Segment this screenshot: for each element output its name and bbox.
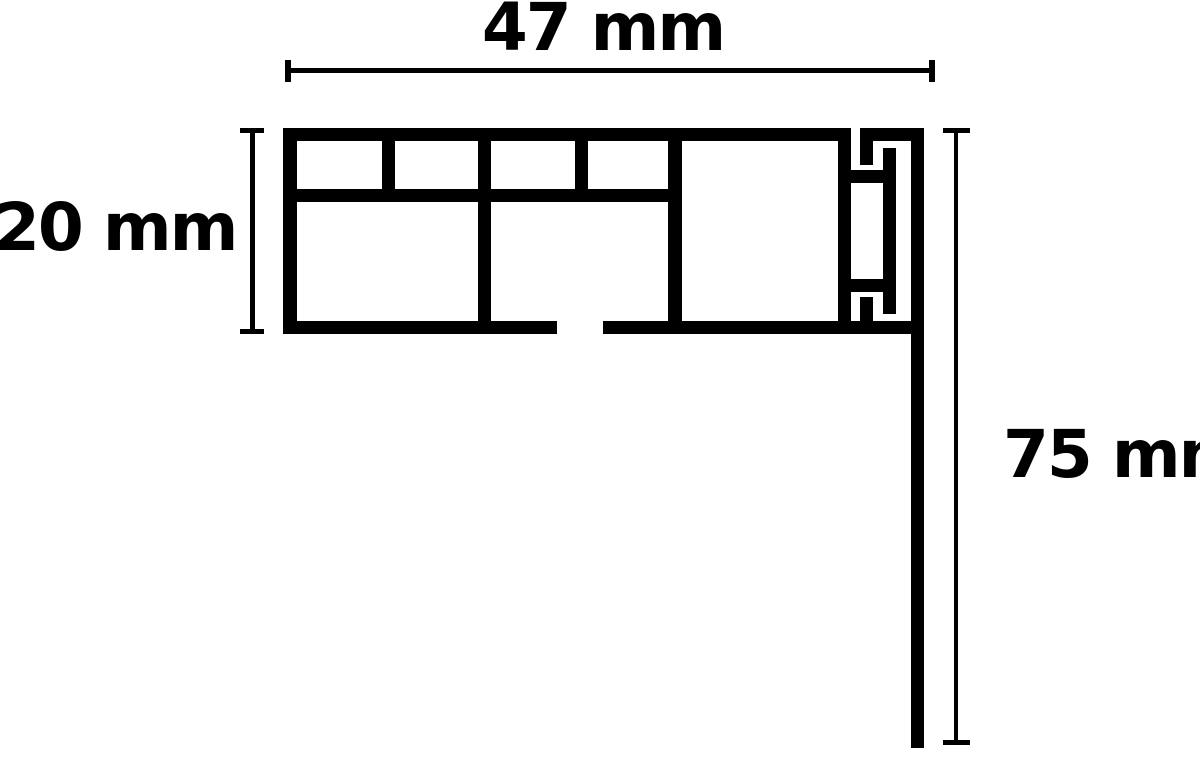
profile-drawing [0,0,1200,763]
diagram-canvas: 47 mm 20 mm 75 mm [0,0,1200,763]
profile-outline [283,128,924,748]
dimension-label-height: 20 mm [0,194,206,262]
dimension-label-drop: 75 mm [1003,421,1200,489]
dimension-label-width: 47 mm [450,0,756,62]
